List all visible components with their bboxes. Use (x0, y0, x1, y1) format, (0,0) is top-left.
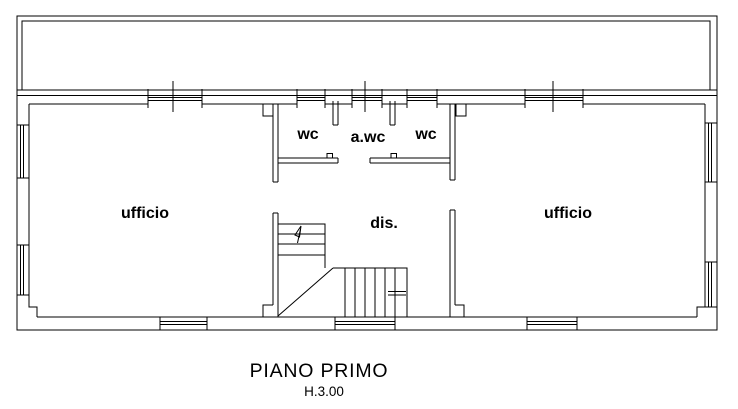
room-label-disimpegno: dis. (370, 215, 398, 232)
room-label-ufficio-right: ufficio (544, 205, 592, 222)
room-label-ufficio-left: ufficio (121, 205, 169, 222)
canvas-background (0, 0, 738, 409)
room-label-wc-right: wc (414, 126, 436, 143)
floor-plan-drawing: wc a.wc wc ufficio dis. ufficio PIANO PR… (0, 0, 738, 409)
room-label-anti-wc: a.wc (351, 129, 386, 146)
plan-title: PIANO PRIMO (250, 360, 389, 382)
plan-height-note: H.3.00 (304, 384, 344, 399)
room-label-wc-left: wc (296, 126, 318, 143)
floor-plan-page: wc a.wc wc ufficio dis. ufficio PIANO PR… (0, 0, 738, 409)
